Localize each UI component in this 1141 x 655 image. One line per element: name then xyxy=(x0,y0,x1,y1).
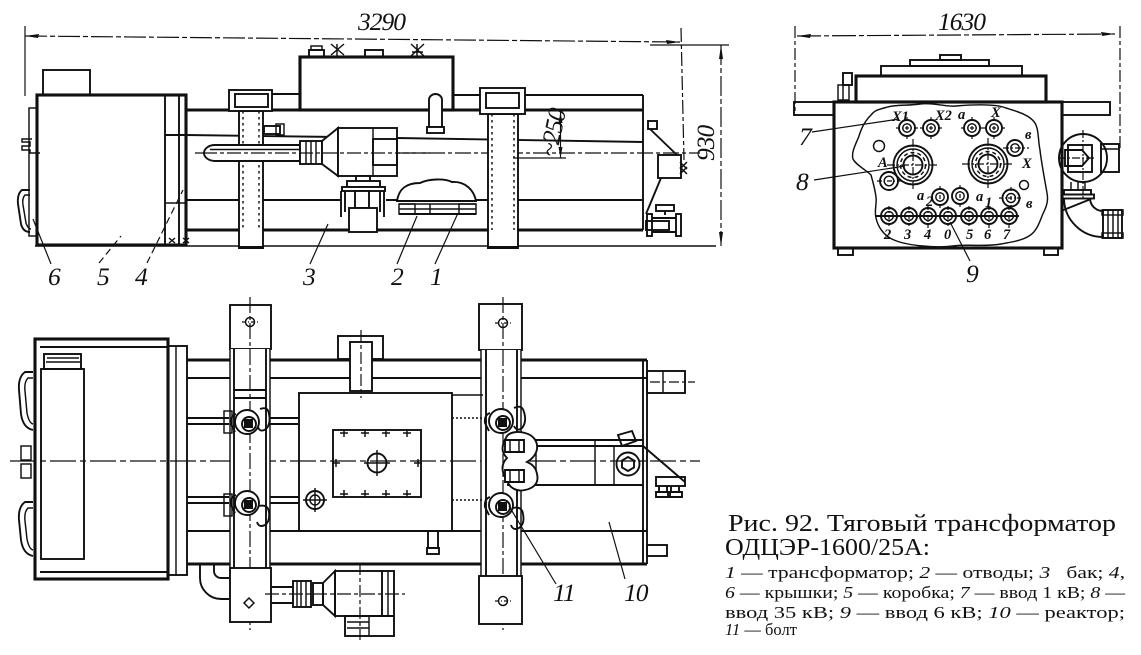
svg-text:930: 930 xyxy=(691,125,720,162)
svg-text:a: a xyxy=(976,189,983,205)
svg-text:6: 6 xyxy=(48,262,61,291)
svg-text:6: 6 xyxy=(984,227,992,243)
svg-text:5: 5 xyxy=(97,262,109,291)
svg-text:6 — крышки; 5 — коробка; 7 — в: 6 — крышки; 5 — коробка; 7 — ввод 1 кВ; … xyxy=(725,583,1126,602)
svg-text:7: 7 xyxy=(1003,227,1011,243)
svg-text:3: 3 xyxy=(302,262,315,291)
svg-text:X1: X1 xyxy=(891,109,909,125)
svg-text:a: a xyxy=(958,107,965,123)
svg-text:в: в xyxy=(1026,196,1033,212)
svg-text:9: 9 xyxy=(966,259,979,288)
svg-text:Рис. 92. Тяговый трансфо: Рис. 92. Тяговый трансформатор xyxy=(728,511,1116,537)
svg-text:в: в xyxy=(1025,127,1032,143)
svg-text:1630: 1630 xyxy=(938,7,986,36)
svg-text:8: 8 xyxy=(796,167,809,196)
svg-text:2: 2 xyxy=(391,262,404,291)
svg-text:1 — трансформатор; 2 — отводы;: 1 — трансформатор; 2 — отводы; 3 бак; 4, xyxy=(725,563,1125,582)
svg-text:3: 3 xyxy=(903,227,911,243)
svg-text:4: 4 xyxy=(923,227,931,243)
svg-text:11 — болт: 11 — болт xyxy=(725,620,797,639)
svg-text:0: 0 xyxy=(944,227,951,243)
svg-text:3290: 3290 xyxy=(357,7,406,36)
svg-text:ОДЦЭР-1600/25А:: ОДЦЭР-1600/25А: xyxy=(725,535,930,561)
svg-text:11: 11 xyxy=(553,578,575,607)
svg-text:10: 10 xyxy=(624,578,649,607)
svg-text:5: 5 xyxy=(966,227,973,243)
svg-text:1: 1 xyxy=(430,262,442,291)
svg-text:X2: X2 xyxy=(934,108,952,124)
svg-text:4: 4 xyxy=(135,262,148,291)
svg-text:X: X xyxy=(990,105,1001,121)
svg-text:2: 2 xyxy=(883,227,891,243)
svg-text:X: X xyxy=(1021,156,1032,172)
svg-text:a: a xyxy=(917,188,924,204)
